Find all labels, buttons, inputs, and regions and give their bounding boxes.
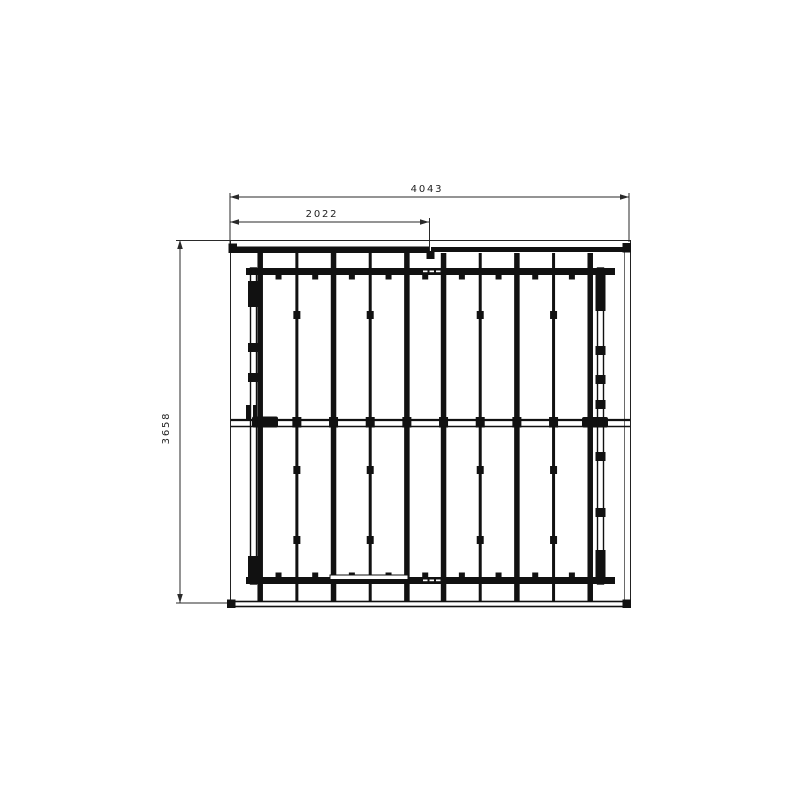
top-beam-right-cap [623, 243, 632, 253]
dimension-value-overall-height: 3658 [161, 412, 172, 445]
dash [436, 580, 441, 582]
left-rail-clip [248, 343, 258, 352]
bottom-rail-clip [459, 573, 465, 578]
bar-connector-knob [477, 466, 484, 474]
bottom-rail-clip [312, 573, 318, 578]
top-rail-clip [532, 275, 538, 280]
top-beam-left-cap [229, 244, 238, 254]
left-rail-clip [248, 373, 258, 382]
left-rail-clip [248, 556, 258, 584]
arrowhead-right-icon [420, 219, 429, 225]
dash [430, 580, 435, 582]
bar-connector-knob [293, 536, 300, 544]
middle-rail-bar-connector [439, 417, 448, 428]
dimension-overall-height: 3658 [161, 240, 230, 603]
arrowhead-bottom-icon [177, 594, 183, 603]
middle-rail-bar-connector [329, 417, 338, 428]
bar-connector-knob [367, 466, 374, 474]
bottom-rail-clip [532, 573, 538, 578]
right-rail-clip [596, 400, 606, 409]
dimension-half-width: 2022 [230, 209, 430, 252]
middle-rail-bar-connector [402, 417, 411, 428]
outer-frame [231, 241, 631, 607]
right-rail-clip [596, 269, 606, 311]
dash [423, 580, 428, 582]
middle-rail-bar-connector [476, 417, 485, 428]
top-rail-clip [496, 275, 502, 280]
dimension-value-overall-width: 4043 [411, 184, 444, 195]
middle-rail-bar-connector [366, 417, 375, 428]
dash [423, 271, 428, 273]
bar-connector-knob [293, 466, 300, 474]
top-rail-clip [386, 275, 392, 280]
bottom-rail-clip [569, 573, 575, 578]
bar-connector-knob [550, 466, 557, 474]
top-rail-clip [312, 275, 318, 280]
right-rail-clip [596, 346, 606, 355]
bottom-beam-right-cap [623, 600, 632, 609]
right-rail-clip [596, 550, 606, 584]
bottom-beam-left-cap [227, 600, 236, 609]
top-rail-clip [422, 275, 428, 280]
right-rail-clip [596, 375, 606, 384]
bar-connector-knob [367, 311, 374, 319]
arrowhead-left-icon [230, 194, 239, 200]
middle-rail-bar-connector [512, 417, 521, 428]
bar-connector-knob [550, 311, 557, 319]
bottom-rail-clip [276, 573, 282, 578]
dash [430, 271, 435, 273]
arrowhead-left-icon [230, 219, 239, 225]
top-beam-left-segment [234, 247, 429, 254]
bar-connector-knob [550, 536, 557, 544]
bottom-beam-profile [234, 602, 624, 607]
top-rail-clip [569, 275, 575, 280]
top-rail-clip [276, 275, 282, 280]
top-beam-mid-connector [427, 251, 435, 259]
bottom-slat-strip [330, 575, 408, 580]
dash [436, 271, 441, 273]
dimension-value-half-width: 2022 [306, 209, 339, 220]
top-rail-clip [459, 275, 465, 280]
top-beam-right-segment [431, 247, 623, 252]
middle-rail-bar-connector [292, 417, 301, 428]
bottom-beam [227, 600, 631, 609]
arrowhead-top-icon [177, 240, 183, 249]
middle-rail [231, 417, 630, 428]
right-rail-clip [596, 508, 606, 517]
bar-connector-knob [293, 311, 300, 319]
bottom-rail-clip [422, 573, 428, 578]
arrowhead-right-icon [620, 194, 629, 200]
bar-connector-knob [477, 311, 484, 319]
bar-connector-knob [367, 536, 374, 544]
left-rail-clip [248, 281, 258, 307]
frame-top-view-drawing: 4043 2022 3658 [0, 0, 800, 800]
middle-rail-bar-connector [549, 417, 558, 428]
top-rail-clip [349, 275, 355, 280]
bottom-rail-clip [496, 573, 502, 578]
technical-drawing-canvas: 4043 2022 3658 [0, 0, 800, 800]
right-rail-clip [596, 452, 606, 461]
left-hinge-prong [253, 405, 257, 420]
left-hinge-prong [246, 405, 250, 420]
bar-connector-knob [477, 536, 484, 544]
